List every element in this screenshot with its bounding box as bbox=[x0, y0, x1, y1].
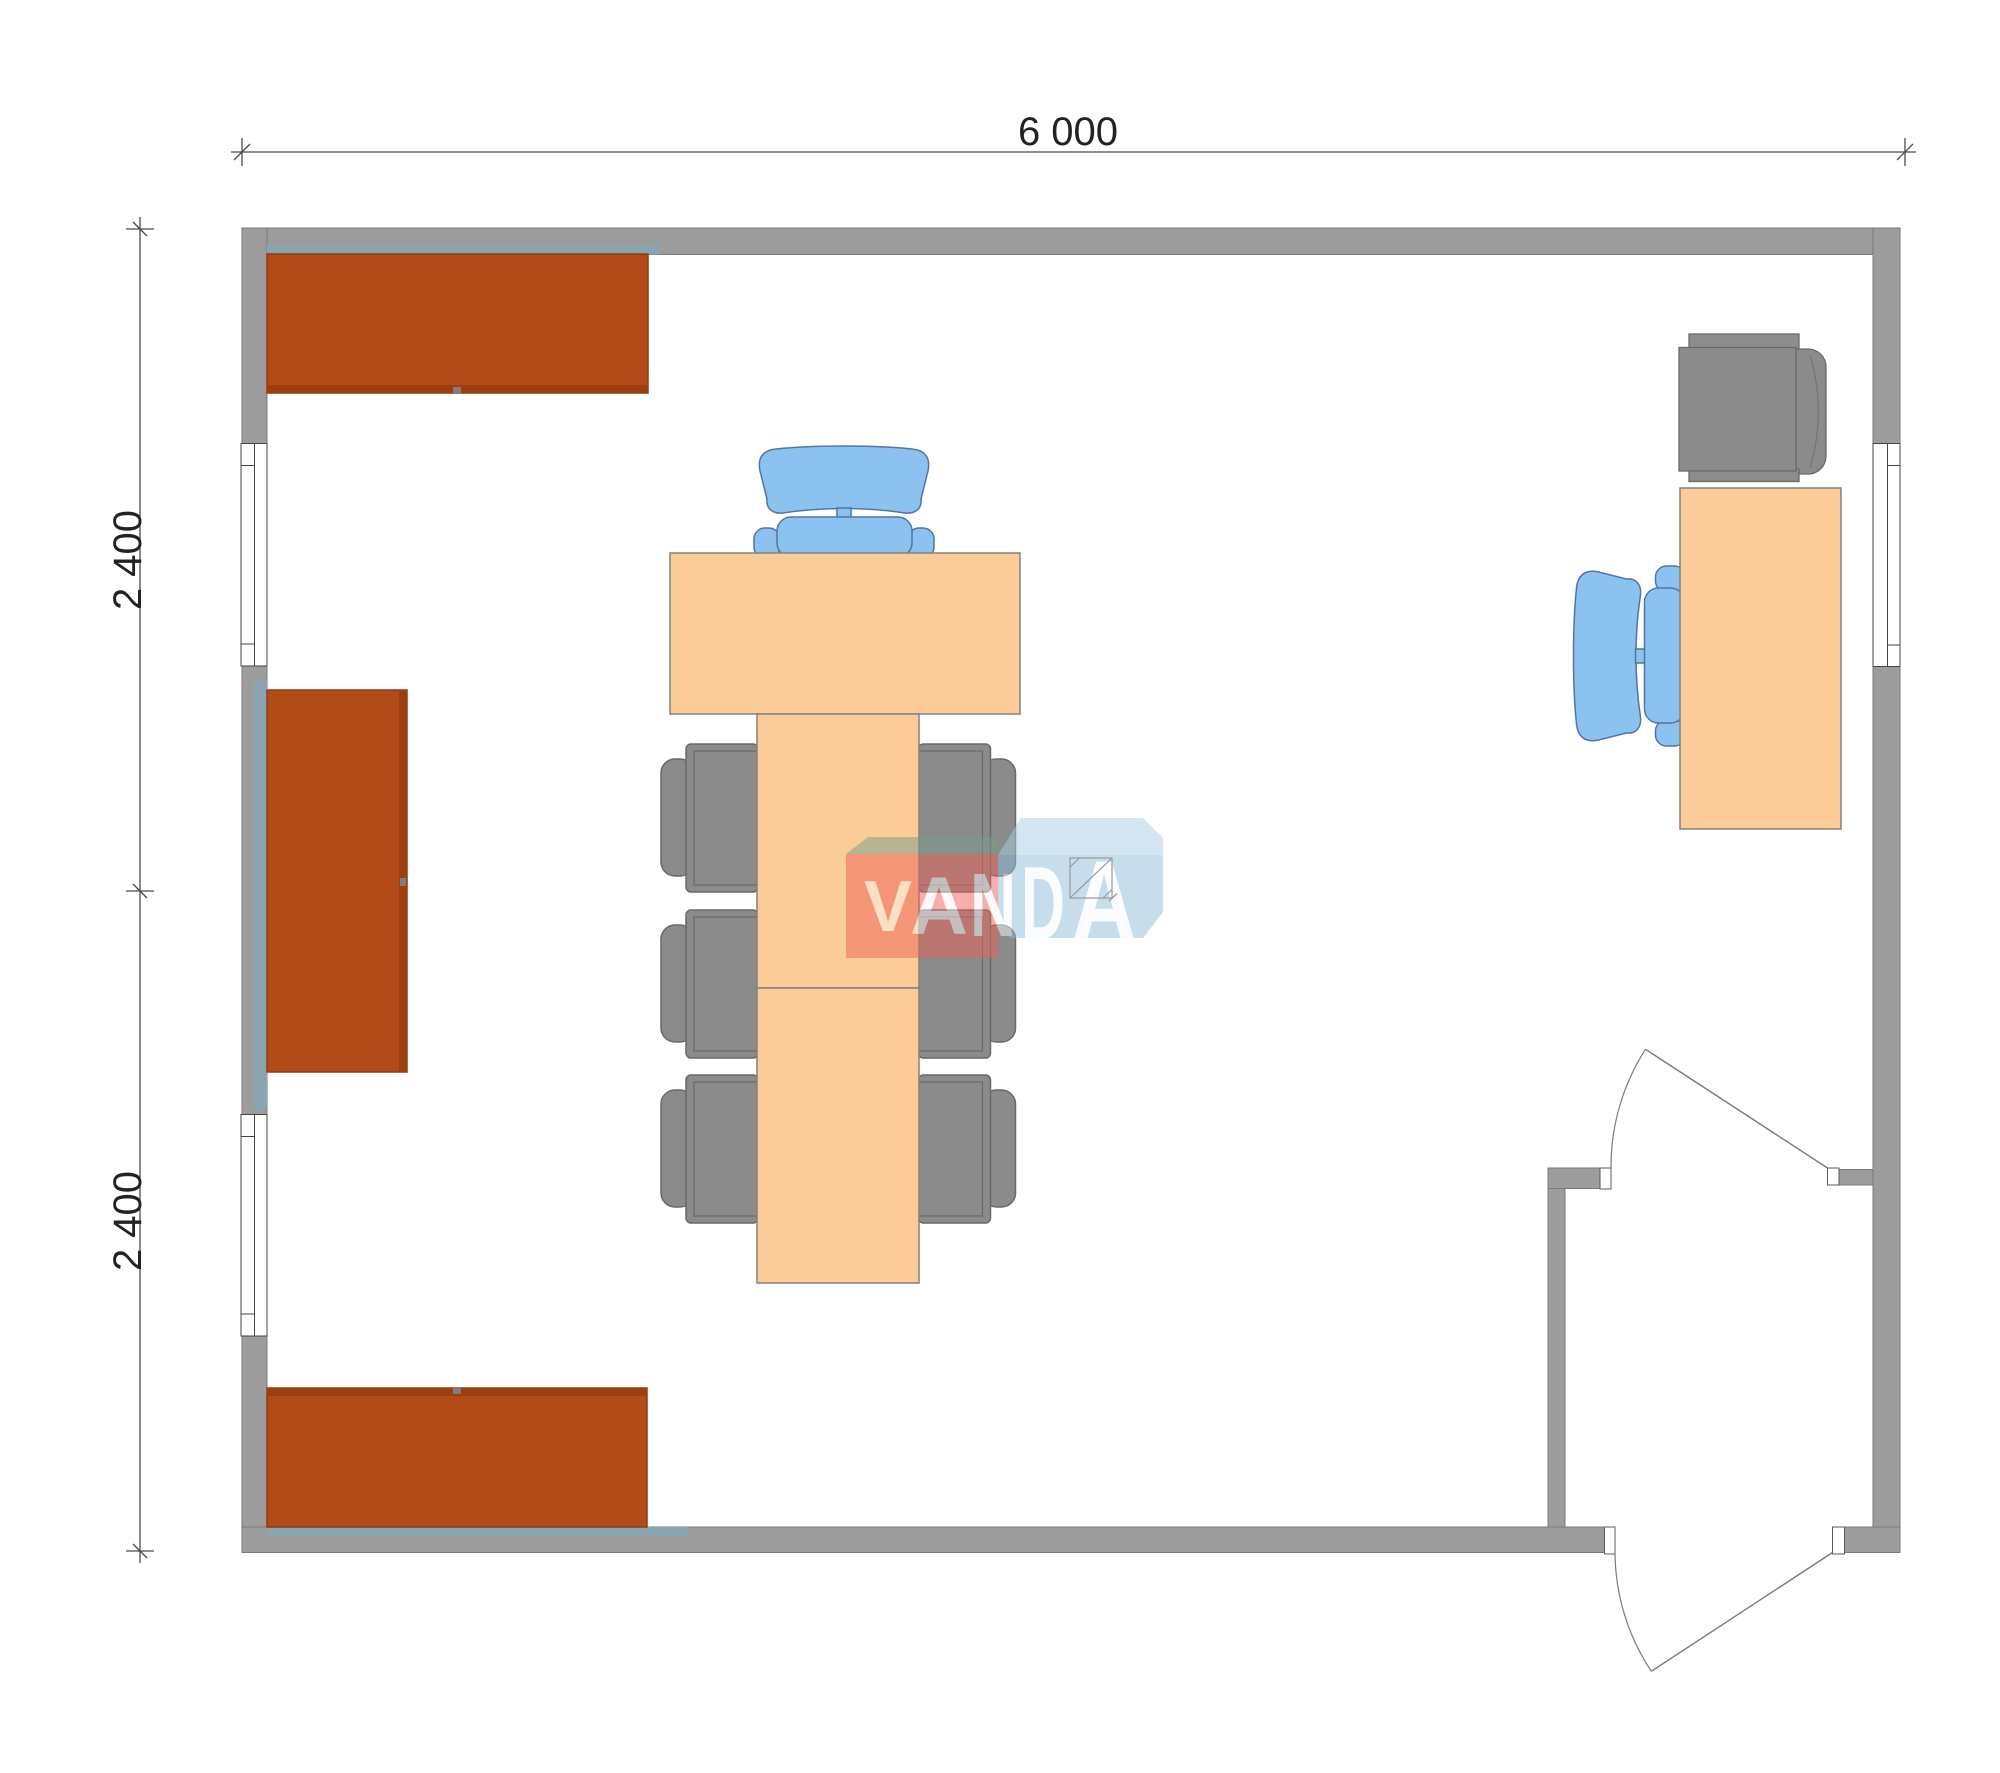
svg-text:A: A bbox=[910, 861, 968, 952]
svg-text:V: V bbox=[864, 867, 912, 947]
svg-text:N: N bbox=[970, 856, 1016, 956]
svg-text:2 400: 2 400 bbox=[106, 510, 150, 610]
svg-text:A: A bbox=[1071, 836, 1137, 967]
svg-text:2 400: 2 400 bbox=[106, 1171, 150, 1271]
svg-text:6 000: 6 000 bbox=[1018, 110, 1118, 154]
svg-text:D: D bbox=[1021, 846, 1065, 962]
